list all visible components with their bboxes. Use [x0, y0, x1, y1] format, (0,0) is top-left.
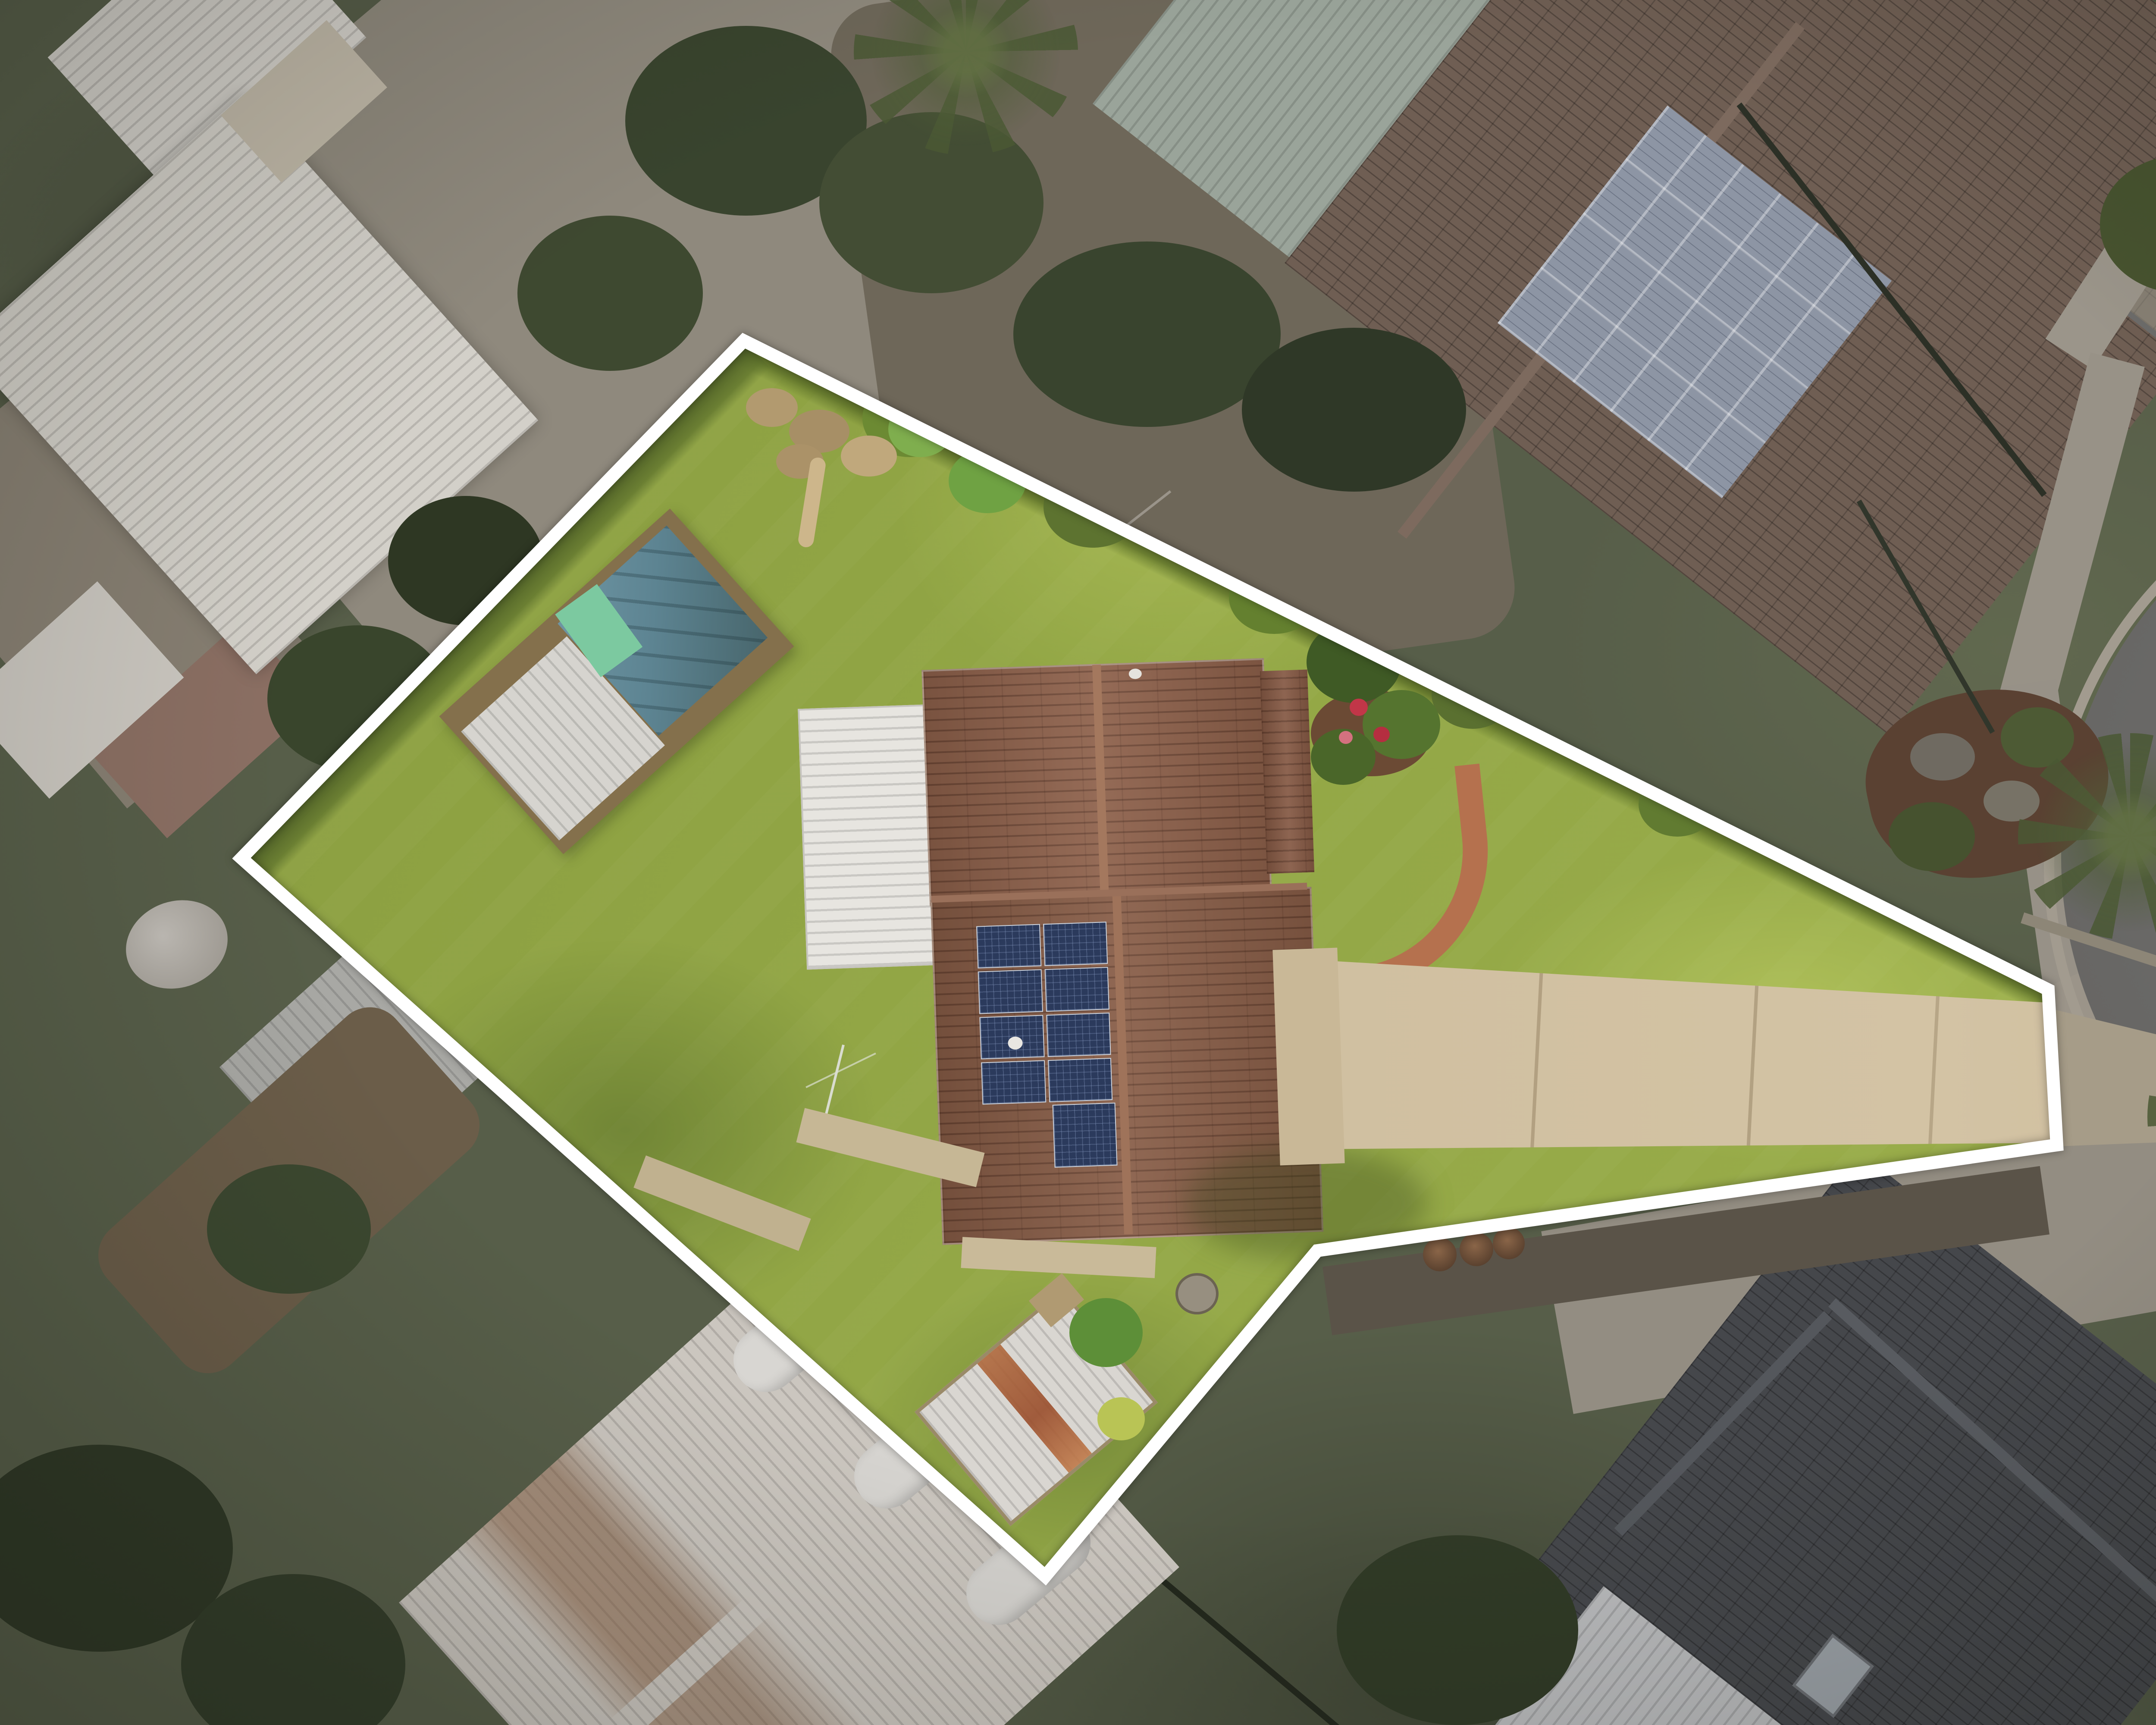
property-boundary-outline — [0, 0, 2156, 1725]
aerial-photo-stage: CENTURY 21® Lifestyle — [0, 0, 2156, 1725]
boundary-polygon — [241, 341, 2057, 1576]
